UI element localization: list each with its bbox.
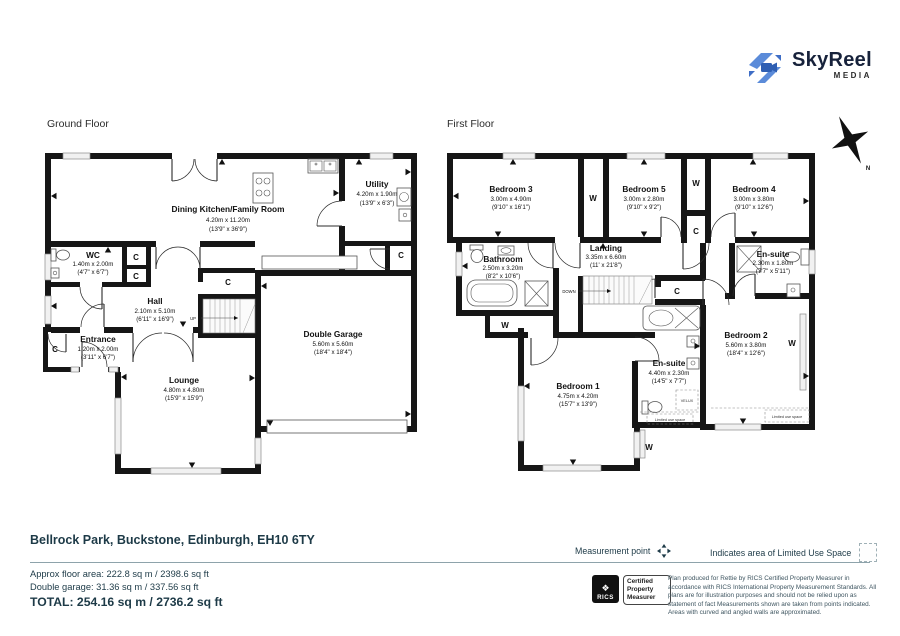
- ff-wardrobe-label: W: [589, 194, 597, 203]
- ff-ensuite-large-label: En-suite: [653, 358, 686, 368]
- svg-text:(15'7" x 13'9"): (15'7" x 13'9"): [559, 401, 597, 408]
- skyreel-icon: [746, 50, 784, 86]
- svg-text:(9'10" x 16'1"): (9'10" x 16'1"): [492, 204, 530, 211]
- svg-text:(7'7" x 5'11"): (7'7" x 5'11"): [756, 268, 790, 275]
- ff-bedroom2-label: Bedroom 2: [724, 330, 768, 340]
- svg-text:4.40m x 2.30m: 4.40m x 2.30m: [649, 370, 690, 377]
- svg-text:(13'9" x 36'9"): (13'9" x 36'9"): [209, 226, 247, 233]
- svg-text:3.00m x 3.80m: 3.00m x 3.80m: [734, 196, 775, 203]
- brand-tagline: MEDIA: [792, 72, 872, 80]
- ff-limited-use-label: Limited use space: [655, 418, 686, 422]
- ff-stairs: DOWN: [562, 276, 652, 304]
- brand-name: SkyReel: [792, 50, 872, 70]
- svg-text:(8'2" x 10'6"): (8'2" x 10'6"): [486, 273, 521, 280]
- gf-closet-label: C: [52, 345, 58, 354]
- floorplan-page: SkyReel MEDIA Ground Floor First Floor N: [0, 0, 900, 636]
- gf-closet-label: C: [133, 272, 139, 281]
- legend-measurement-label: Measurement point: [575, 546, 650, 556]
- svg-text:1.20m x 2.00m: 1.20m x 2.00m: [78, 346, 119, 353]
- svg-text:5.60m x 5.60m: 5.60m x 5.60m: [313, 341, 354, 348]
- svg-text:(9'10" x 12'6"): (9'10" x 12'6"): [735, 204, 773, 211]
- gf-up-label: UP: [190, 316, 196, 321]
- rics-badge: ❖ RICS Certified Property Measurer: [592, 575, 671, 605]
- ff-bedroom3-label: Bedroom 3: [489, 184, 533, 194]
- compass-north-label: N: [866, 166, 870, 172]
- svg-text:(3'11" x 6'7"): (3'11" x 6'7"): [81, 354, 115, 361]
- ff-wardrobe-label: W: [692, 179, 700, 188]
- gf-closet-label: C: [133, 253, 139, 262]
- limited-use-swatch: [859, 543, 877, 562]
- svg-text:4.20m x 11.20m: 4.20m x 11.20m: [206, 217, 250, 224]
- ff-landing-label: Landing: [590, 243, 622, 253]
- svg-text:2.10m x 5.10m: 2.10m x 5.10m: [135, 308, 176, 315]
- rics-crest-icon: ❖: [601, 584, 609, 593]
- ff-wardrobe-label: W: [501, 321, 509, 330]
- svg-text:4.75m x 4.20m: 4.75m x 4.20m: [558, 393, 599, 400]
- gf-utility-label: Utility: [365, 179, 388, 189]
- gf-hall-label: Hall: [147, 296, 162, 306]
- brand-logo: SkyReel MEDIA: [746, 50, 872, 86]
- disclaimer-text: Plan produced for Rettie by RICS Certifi…: [668, 575, 880, 618]
- ground-floor-plan: UP Dining Kitchen/Family: [38, 146, 438, 498]
- gf-wc-label: WC: [86, 250, 100, 260]
- ff-wardrobe-label: W: [788, 339, 796, 348]
- property-address: Bellrock Park, Buckstone, Edinburgh, EH1…: [30, 533, 315, 547]
- garage-area: Double garage: 31.36 sq m / 337.56 sq ft: [30, 582, 223, 592]
- ff-bedroom1-label: Bedroom 1: [556, 381, 600, 391]
- gf-kitchen-counter: [262, 256, 357, 269]
- ff-down-label: DOWN: [562, 289, 575, 294]
- svg-text:(11' x 21'8"): (11' x 21'8"): [590, 262, 622, 269]
- gf-closet-label: C: [398, 251, 404, 260]
- legend-limited-use: Indicates area of Limited Use Space: [710, 543, 877, 562]
- gf-kitchen-label: Dining Kitchen/Family Room: [172, 204, 285, 214]
- ff-dashed-areas: Limited use space Limited use space VELU…: [640, 390, 809, 424]
- first-floor-plan: DOWN Limited use space: [443, 146, 853, 498]
- legend-measurement-point: Measurement point: [575, 543, 672, 559]
- ff-limited-use-label: Limited use space: [772, 415, 803, 419]
- gf-garage-label: Double Garage: [303, 329, 362, 339]
- svg-text:3.35m x 6.60m: 3.35m x 6.60m: [586, 254, 627, 261]
- rics-logo: ❖ RICS: [592, 575, 619, 603]
- rics-certification-label: Certified Property Measurer: [623, 575, 671, 605]
- svg-text:5.60m x 3.80m: 5.60m x 3.80m: [726, 342, 767, 349]
- gf-closet-label: C: [225, 278, 231, 287]
- ff-bedroom5-label: Bedroom 5: [622, 184, 666, 194]
- footer-divider: [30, 562, 870, 563]
- svg-text:(4'7" x 6'7"): (4'7" x 6'7"): [77, 269, 108, 276]
- rics-name: RICS: [597, 594, 614, 601]
- ff-bathroom-label: Bathroom: [483, 254, 522, 264]
- svg-text:3.00m x 2.80m: 3.00m x 2.80m: [624, 196, 665, 203]
- gf-lounge-label: Lounge: [169, 375, 199, 385]
- svg-text:2.30m x 1.80m: 2.30m x 1.80m: [753, 260, 794, 267]
- svg-text:2.50m x 3.20m: 2.50m x 3.20m: [483, 265, 524, 272]
- approx-floor-area: Approx floor area: 222.8 sq m / 2398.6 s…: [30, 569, 223, 579]
- gf-entrance-label: Entrance: [80, 334, 116, 344]
- floor-areas: Approx floor area: 222.8 sq m / 2398.6 s…: [30, 569, 223, 609]
- svg-text:4.20m x 1.90m: 4.20m x 1.90m: [357, 191, 398, 198]
- svg-text:(13'9" x 6'3"): (13'9" x 6'3"): [360, 200, 395, 207]
- first-floor-title: First Floor: [447, 118, 494, 130]
- svg-text:(18'4" x 12'6"): (18'4" x 12'6"): [727, 350, 765, 357]
- svg-text:(6'11" x 16'9"): (6'11" x 16'9"): [136, 316, 174, 323]
- legend-limited-label: Indicates area of Limited Use Space: [710, 548, 851, 558]
- svg-text:(14'5" x 7'7"): (14'5" x 7'7"): [652, 378, 687, 385]
- svg-text:(9'10" x 9'2"): (9'10" x 9'2"): [627, 204, 662, 211]
- total-area: TOTAL: 254.16 sq m / 2736.2 sq ft: [30, 595, 223, 609]
- measurement-point-icon: [656, 543, 672, 559]
- svg-text:3.00m x 4.90m: 3.00m x 4.90m: [491, 196, 532, 203]
- svg-text:1.40m x 2.00m: 1.40m x 2.00m: [73, 261, 114, 268]
- svg-text:(18'4" x 18'4"): (18'4" x 18'4"): [314, 349, 352, 356]
- svg-text:(15'9" x 15'9"): (15'9" x 15'9"): [165, 395, 203, 402]
- ff-wardrobe-label: W: [645, 443, 653, 452]
- ff-closet-label: C: [693, 227, 699, 236]
- gf-garage-door: [267, 420, 407, 433]
- svg-text:4.80m x 4.80m: 4.80m x 4.80m: [164, 387, 205, 394]
- ground-floor-title: Ground Floor: [47, 118, 109, 130]
- ff-bedroom4-label: Bedroom 4: [732, 184, 776, 194]
- ff-closet-label: C: [674, 287, 680, 296]
- ff-ensuite-small-label: En-suite: [757, 249, 790, 259]
- ff-velux-label: VELUX: [681, 399, 694, 403]
